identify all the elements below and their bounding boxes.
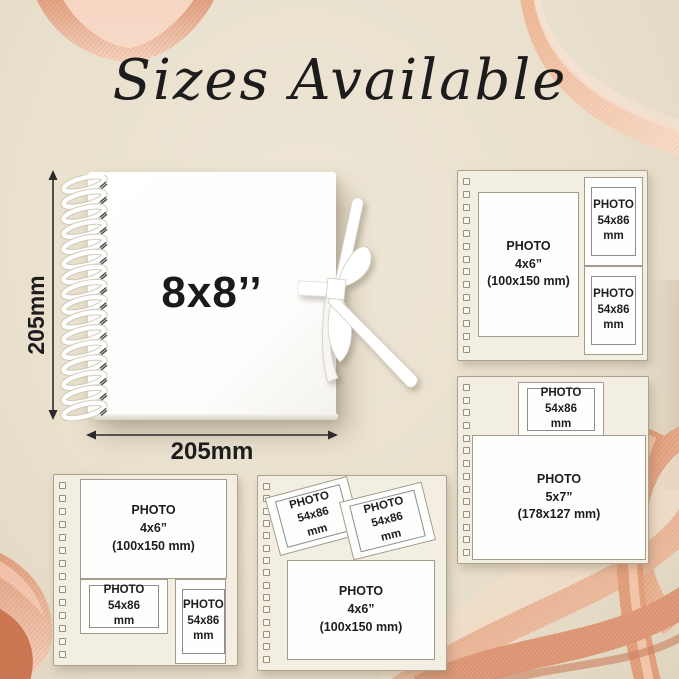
- binding-holes: [463, 384, 472, 556]
- photo-slot-54x86: PHOTO 54x86 mm: [518, 382, 604, 437]
- layout-page-middle-right: PHOTO 54x86 mm PHOTO 5x7” (178x127 mm): [457, 376, 649, 564]
- binding-holes: [463, 178, 472, 353]
- height-dimension-label: 205mm: [23, 254, 53, 376]
- spiral-binding: [54, 175, 118, 421]
- photo-slot-54x86: PHOTO 54x86 mm: [584, 177, 643, 266]
- photo-slot-54x86: PHOTO 54x86 mm: [175, 579, 226, 664]
- layout-page-bottom-left: PHOTO 4x6” (100x150 mm) PHOTO 54x86 mm P…: [53, 474, 238, 666]
- layout-page-bottom-middle: PHOTO 54x86 mm PHOTO 54x86 mm PHOTO 4x6”…: [257, 475, 447, 671]
- ribbon-bottom-left: [0, 552, 52, 679]
- photo-slot-4x6: PHOTO 4x6” (100x150 mm): [478, 192, 579, 337]
- width-dimension-label: 205mm: [137, 438, 287, 466]
- ribbon-bow: [298, 178, 440, 410]
- binding-holes: [59, 482, 68, 658]
- photo-slot-54x86-tilted: PHOTO 54x86 mm: [339, 482, 436, 561]
- photo-slot-54x86: PHOTO 54x86 mm: [80, 579, 168, 634]
- photo-slot-4x6: PHOTO 4x6” (100x150 mm): [80, 479, 227, 579]
- page-title: Sizes Available: [60, 48, 620, 113]
- photo-slot-5x7: PHOTO 5x7” (178x127 mm): [472, 435, 646, 560]
- photo-slot-4x6: PHOTO 4x6” (100x150 mm): [287, 560, 435, 660]
- product-size-infographic: Sizes Available 8x8’’ 205mm 205mm PHOTO …: [0, 0, 679, 679]
- layout-page-top-right: PHOTO 4x6” (100x150 mm) PHOTO 54x86 mm P…: [457, 170, 648, 361]
- photo-slot-54x86: PHOTO 54x86 mm: [584, 266, 643, 355]
